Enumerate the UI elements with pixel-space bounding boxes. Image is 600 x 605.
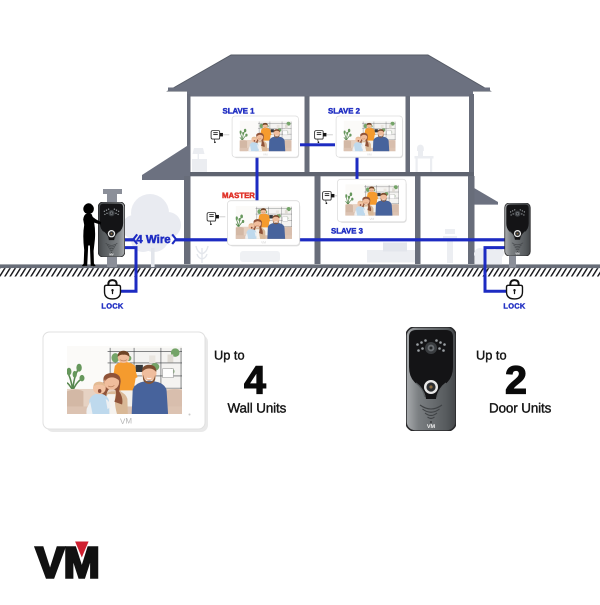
svg-text:VM: VM — [36, 540, 99, 588]
svg-text:MASTER: MASTER — [222, 191, 255, 200]
svg-text:2: 2 — [505, 359, 527, 403]
svg-text:LOCK: LOCK — [503, 302, 526, 311]
svg-text:Up to: Up to — [476, 347, 507, 362]
svg-text:SLAVE 2: SLAVE 2 — [328, 106, 361, 115]
svg-text:Up to: Up to — [214, 347, 245, 362]
svg-text:SLAVE 3: SLAVE 3 — [331, 227, 364, 236]
svg-text:Door Units: Door Units — [489, 401, 552, 416]
svg-text:4 Wire: 4 Wire — [136, 234, 170, 246]
svg-text:Wall Units: Wall Units — [228, 401, 287, 416]
svg-text:LOCK: LOCK — [101, 302, 124, 311]
svg-text:VM: VM — [120, 417, 132, 427]
svg-text:SLAVE 1: SLAVE 1 — [223, 106, 256, 115]
svg-text:4: 4 — [244, 359, 266, 403]
